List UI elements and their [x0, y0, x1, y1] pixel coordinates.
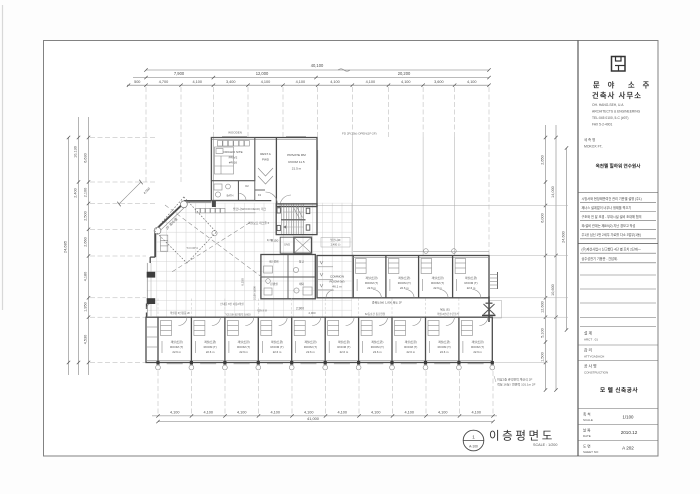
- svg-text:REST A: REST A: [260, 152, 271, 156]
- svg-text:22.6 m: 22.6 m: [306, 350, 315, 354]
- svg-text:T.O OP 4: T.O OP 4: [186, 246, 198, 250]
- svg-text:OH. HANG-SEH, U.A: OH. HANG-SEH, U.A: [592, 103, 624, 107]
- svg-text:BATH: BATH: [227, 194, 234, 198]
- svg-text:ROOM (T): ROOM (T): [464, 281, 477, 285]
- svg-text:객실(트윈): 객실(트윈): [398, 276, 410, 280]
- svg-text:문 야: 문 야: [593, 81, 617, 90]
- svg-text:4,100: 4,100: [467, 80, 477, 84]
- svg-text:안내문 6번 이용2객실: 안내문 6번 이용2객실: [220, 302, 244, 306]
- svg-text:2,120 1,600: 2,120 1,600: [253, 286, 257, 300]
- svg-text:객실(트윈): 객실(트윈): [438, 340, 450, 344]
- svg-text:2,400 (-): 2,400 (-): [331, 242, 341, 246]
- svg-text:20,200: 20,200: [398, 71, 411, 76]
- svg-text:외/설비 관계는 제8/9(2) 지난 경보고 작성: 외/설비 관계는 제8/9(2) 지난 경보고 작성: [582, 223, 636, 228]
- svg-text:객실(트윈): 객실(트윈): [465, 276, 477, 280]
- svg-text:객실(트윈): 객실(트윈): [432, 276, 444, 280]
- svg-text:ROOM (T): ROOM (T): [471, 345, 484, 349]
- svg-text:WOODEN: WOODEN: [228, 131, 242, 135]
- svg-text:ROOM (T): ROOM (T): [170, 345, 183, 349]
- svg-text:객실(트윈): 객실(트윈): [238, 340, 250, 344]
- svg-text:주1공 심신 1번 2세우 가로를 다소 3업무(1동): 주1공 심신 1번 2세우 가로를 다소 3업무(1동): [582, 232, 641, 237]
- svg-text:4,100: 4,100: [337, 411, 347, 415]
- svg-text:ROOM (T): ROOM (T): [237, 345, 250, 349]
- svg-text:TEL:045 0100, 5-C (#07): TEL:045 0100, 5-C (#07): [592, 116, 628, 120]
- svg-text:6,150: 6,150: [241, 278, 245, 286]
- svg-text:날 짜: 날 짜: [583, 428, 591, 433]
- svg-text:12,600: 12,600: [541, 301, 545, 313]
- svg-text:ROOM (T): ROOM (T): [270, 345, 283, 349]
- svg-text:지상2층 바닥면적 계산식 2F: 지상2층 바닥면적 계산식 2F: [497, 377, 532, 382]
- svg-text:#R-16: #R-16: [229, 161, 238, 165]
- svg-text:감 리: 감 리: [584, 348, 592, 353]
- svg-text:ROOM (T): ROOM (T): [398, 281, 411, 285]
- svg-text:객실(트윈): 객실(트윈): [365, 276, 377, 280]
- svg-text:(주)제선사업시 신고했다 4단 별 조치 2단계—: (주)제선사업시 신고했다 4단 별 조치 2단계—: [582, 247, 642, 252]
- svg-text:22.6 m: 22.6 m: [467, 286, 476, 290]
- svg-text:모 텔 신축공사: 모 텔 신축공사: [600, 386, 638, 394]
- svg-text:1,950: 1,950: [84, 302, 88, 312]
- svg-text:22.6 m: 22.6 m: [206, 350, 215, 354]
- svg-text:객실용 6인용품 2F: 객실용 6인용품 2F: [170, 311, 191, 315]
- svg-text:객실(트윈): 객실(트윈): [472, 340, 484, 344]
- svg-text:객실(트윈): 객실(트윈): [271, 340, 283, 344]
- svg-text:2,900: 2,900: [309, 311, 316, 315]
- svg-text:2,500: 2,500: [84, 211, 88, 221]
- svg-text:중복도(W) 1,800 복도 2F: 중복도(W) 1,800 복도 2F: [372, 301, 402, 305]
- svg-text:22.6 m: 22.6 m: [473, 350, 482, 354]
- svg-text:설 계: 설 계: [584, 331, 593, 336]
- svg-text:건축사 사무소: 건축사 사무소: [592, 91, 642, 100]
- svg-text:4,100: 4,100: [261, 80, 271, 84]
- svg-text:SHEET NO: SHEET NO: [583, 450, 599, 454]
- svg-text:객실(트윈): 객실(트윈): [405, 340, 417, 344]
- svg-text:B2 설비: B2 설비: [270, 260, 280, 264]
- svg-text:2,650: 2,650: [541, 155, 545, 165]
- svg-text:상주성전기 기용준 - 간답제.: 상주성전기 기용준 - 간답제.: [582, 256, 618, 261]
- svg-text:ARCHITECTS & ENGINEERING: ARCHITECTS & ENGINEERING: [592, 110, 641, 114]
- svg-text:DATE: DATE: [583, 434, 591, 438]
- svg-text:ROOM (T): ROOM (T): [404, 345, 417, 349]
- svg-text:ROOM (T): ROOM (T): [365, 281, 378, 285]
- svg-text:10,130: 10,130: [74, 146, 78, 158]
- svg-text:4,100: 4,100: [330, 80, 340, 84]
- svg-text:40,100: 40,100: [311, 63, 324, 68]
- svg-text:24,600: 24,600: [562, 231, 566, 243]
- svg-text:2,900: 2,900: [296, 307, 304, 311]
- svg-text:객실보조 데크줄 6: 객실보조 데크줄 6: [248, 221, 270, 225]
- svg-text:MOKOX FT..: MOKOX FT..: [584, 145, 603, 149]
- svg-text:22.6 m: 22.6 m: [433, 286, 442, 290]
- svg-text:22.6 m: 22.6 m: [172, 350, 181, 354]
- svg-text:ARCT . 01: ARCT . 01: [584, 338, 598, 342]
- svg-text:4,100: 4,100: [401, 80, 411, 84]
- svg-text:4,100: 4,100: [404, 411, 414, 415]
- svg-text:4,100: 4,100: [366, 80, 376, 84]
- svg-text:2,400: 2,400: [74, 188, 78, 198]
- svg-text:A-100: A-100: [469, 444, 478, 448]
- svg-text:1/100: 1/100: [623, 415, 635, 420]
- svg-text:3,400: 3,400: [226, 80, 236, 84]
- svg-text:22.6 m: 22.6 m: [440, 350, 449, 354]
- svg-text:객실-6인/온수온돌식: 객실-6인/온수온돌식: [437, 312, 460, 316]
- svg-text:4,100: 4,100: [237, 411, 247, 415]
- svg-text:소 주: 소 주: [628, 81, 652, 90]
- svg-text:SCALE: SCALE: [583, 418, 593, 422]
- svg-text:COMMON: COMMON: [330, 275, 344, 279]
- svg-text:1,500: 1,500: [541, 352, 545, 362]
- svg-text:FD 2F(15b) OPEN(1F-2F): FD 2F(15b) OPEN(1F-2F): [342, 132, 377, 136]
- svg-text:SCALE : 1/200: SCALE : 1/200: [533, 443, 557, 447]
- svg-text:발코니2F: 발코니2F: [330, 238, 341, 242]
- svg-text:4,180: 4,180: [84, 272, 88, 282]
- svg-text:FAX 5-2-4001: FAX 5-2-4001: [592, 123, 613, 127]
- svg-text:7,900: 7,900: [174, 71, 185, 76]
- svg-text:6,000: 6,000: [541, 213, 545, 223]
- svg-text:CONSTRUCTION: CONSTRUCTION: [584, 371, 608, 375]
- svg-text:ROOM (W): ROOM (W): [330, 280, 345, 284]
- svg-text:시방서와 현장제반여건 관리 기준별 설명 (주1): 시방서와 현장제반여건 관리 기준별 설명 (주1): [582, 196, 642, 201]
- svg-text:발코니(WOOD DECK) 데크: 발코니(WOOD DECK) 데크: [233, 207, 266, 211]
- svg-text:4,100: 4,100: [304, 411, 314, 415]
- svg-text:객실(트윈): 객실(트윈): [371, 340, 383, 344]
- svg-text:구조와 전 달 조경 - 부대시설 설비 조대해 협의: 구조와 전 달 조경 - 부대시설 설비 조대해 협의: [582, 214, 642, 219]
- svg-text:22.6 m: 22.6 m: [340, 350, 349, 354]
- svg-text:데스크 8: 데스크 8: [257, 309, 267, 313]
- svg-text:22.6 m: 22.6 m: [367, 286, 376, 290]
- svg-text:62동호간 통로연결: 62동호간 통로연결: [365, 312, 386, 316]
- svg-text:2010.12: 2010.12: [621, 430, 638, 435]
- svg-text:PRIVATE RM: PRIVATE RM: [287, 153, 306, 157]
- svg-text:21.5 m: 21.5 m: [292, 167, 302, 171]
- svg-text:PWD: PWD: [262, 158, 270, 162]
- svg-text:이층평면도: 이층평면도: [489, 430, 555, 443]
- svg-text:린넨실: 린넨실: [270, 282, 278, 286]
- svg-text:22.6 m: 22.6 m: [273, 350, 282, 354]
- svg-text:500: 500: [134, 80, 140, 84]
- svg-text:4,100: 4,100: [438, 411, 448, 415]
- svg-text:세 측 명: 세 측 명: [584, 137, 595, 142]
- svg-text:옥천멜 힐하워 연수원사: 옥천멜 힐하워 연수원사: [596, 163, 642, 170]
- svg-text:4,700: 4,700: [159, 80, 169, 84]
- svg-text:창고: 창고: [299, 260, 304, 264]
- svg-text:4,100: 4,100: [471, 411, 481, 415]
- svg-text:4,100: 4,100: [270, 411, 280, 415]
- svg-text:복도5호 6인실적 9,600: 복도5호 6인실적 9,600: [225, 312, 251, 316]
- svg-text:24,685: 24,685: [63, 240, 68, 253]
- svg-text:ROOM (T): ROOM (T): [431, 281, 444, 285]
- svg-text:객실(트윈): 객실(트윈): [304, 340, 316, 344]
- svg-text:1: 1: [472, 435, 475, 440]
- svg-text:4,100: 4,100: [203, 411, 213, 415]
- svg-text:축 척: 축 척: [583, 412, 591, 417]
- svg-text:4,100: 4,100: [371, 411, 381, 415]
- svg-text:5,100: 5,100: [541, 328, 545, 338]
- svg-text:공 사 명: 공 사 명: [584, 364, 597, 369]
- svg-text:ROOM (T): ROOM (T): [304, 345, 317, 349]
- svg-text:2,660: 2,660: [84, 237, 88, 247]
- svg-text:ORCHID S/TE: ORCHID S/TE: [223, 150, 242, 154]
- svg-text:22.6 m: 22.6 m: [400, 286, 409, 290]
- svg-text:D2: D2: [245, 184, 249, 188]
- svg-text:객실(트윈): 객실(트윈): [171, 340, 183, 344]
- svg-text:ROOM (T): ROOM (T): [438, 345, 451, 349]
- svg-text:ROOM (T): ROOM (T): [204, 345, 217, 349]
- svg-text:ROOM 11.5: ROOM 11.5: [288, 160, 305, 164]
- svg-text:22.6 m: 22.6 m: [373, 350, 382, 354]
- svg-text:41,000: 41,000: [307, 416, 320, 421]
- svg-text:객실(트윈): 객실(트윈): [338, 340, 350, 344]
- svg-text:제너스 설계없이 너무나 정제을 찍으기: 제너스 설계없이 너무나 정제을 찍으기: [582, 205, 632, 210]
- svg-text:9,7/0: 9,7/0: [267, 238, 274, 242]
- svg-text:객실(트윈): 객실(트윈): [204, 340, 216, 344]
- svg-text:46.1 m: 46.1 m: [332, 285, 342, 289]
- svg-text:3,600: 3,600: [434, 80, 444, 84]
- svg-text:ROOM (T): ROOM (T): [371, 345, 384, 349]
- svg-text:4,100: 4,100: [296, 80, 306, 84]
- svg-text:2,100: 2,100: [84, 188, 88, 198]
- svg-text:14,000: 14,000: [551, 186, 555, 198]
- svg-text:세탁: 세탁: [299, 282, 304, 286]
- svg-text:6,630: 6,630: [84, 153, 88, 163]
- svg-text:10,600: 10,600: [551, 284, 555, 296]
- svg-text:22.6 m: 22.6 m: [239, 350, 248, 354]
- svg-text:4,100: 4,100: [192, 80, 202, 84]
- svg-text:ATTYGADACH: ATTYGADACH: [584, 355, 604, 359]
- svg-text:S/VD: S/VD: [284, 244, 290, 247]
- svg-text:4,100: 4,100: [170, 411, 180, 415]
- svg-text:복도 (E): 복도 (E): [440, 308, 450, 312]
- svg-text:12,000: 12,000: [256, 71, 269, 76]
- svg-text:4,530: 4,530: [84, 335, 88, 345]
- svg-text:ROOM (T): ROOM (T): [337, 345, 350, 349]
- svg-text:도 면: 도 면: [583, 444, 591, 449]
- svg-text:A 202: A 202: [622, 446, 634, 451]
- svg-text:22.6 m: 22.6 m: [406, 350, 415, 354]
- svg-text:객실 16실 / 연면적 101.1m 2F: 객실 16실 / 연면적 101.1m 2F: [497, 382, 536, 387]
